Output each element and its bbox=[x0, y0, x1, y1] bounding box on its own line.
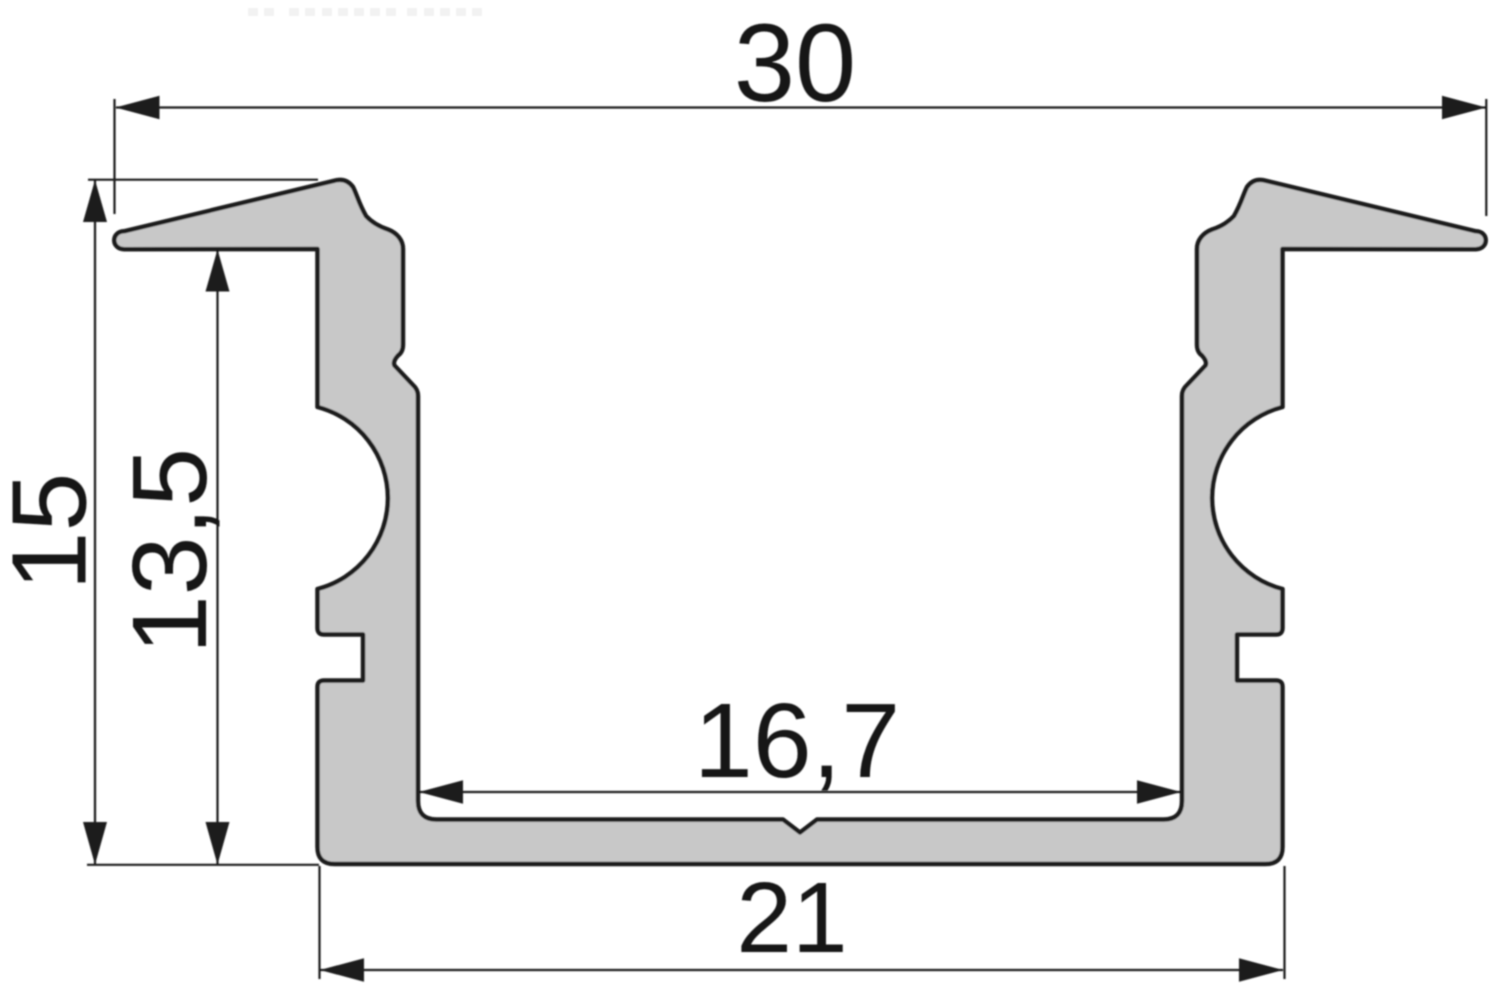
svg-text:13,5: 13,5 bbox=[111, 448, 229, 654]
svg-text:30: 30 bbox=[734, 2, 856, 125]
svg-text:21: 21 bbox=[736, 862, 847, 974]
svg-text:15: 15 bbox=[0, 473, 109, 591]
svg-text:16,7: 16,7 bbox=[694, 682, 900, 800]
